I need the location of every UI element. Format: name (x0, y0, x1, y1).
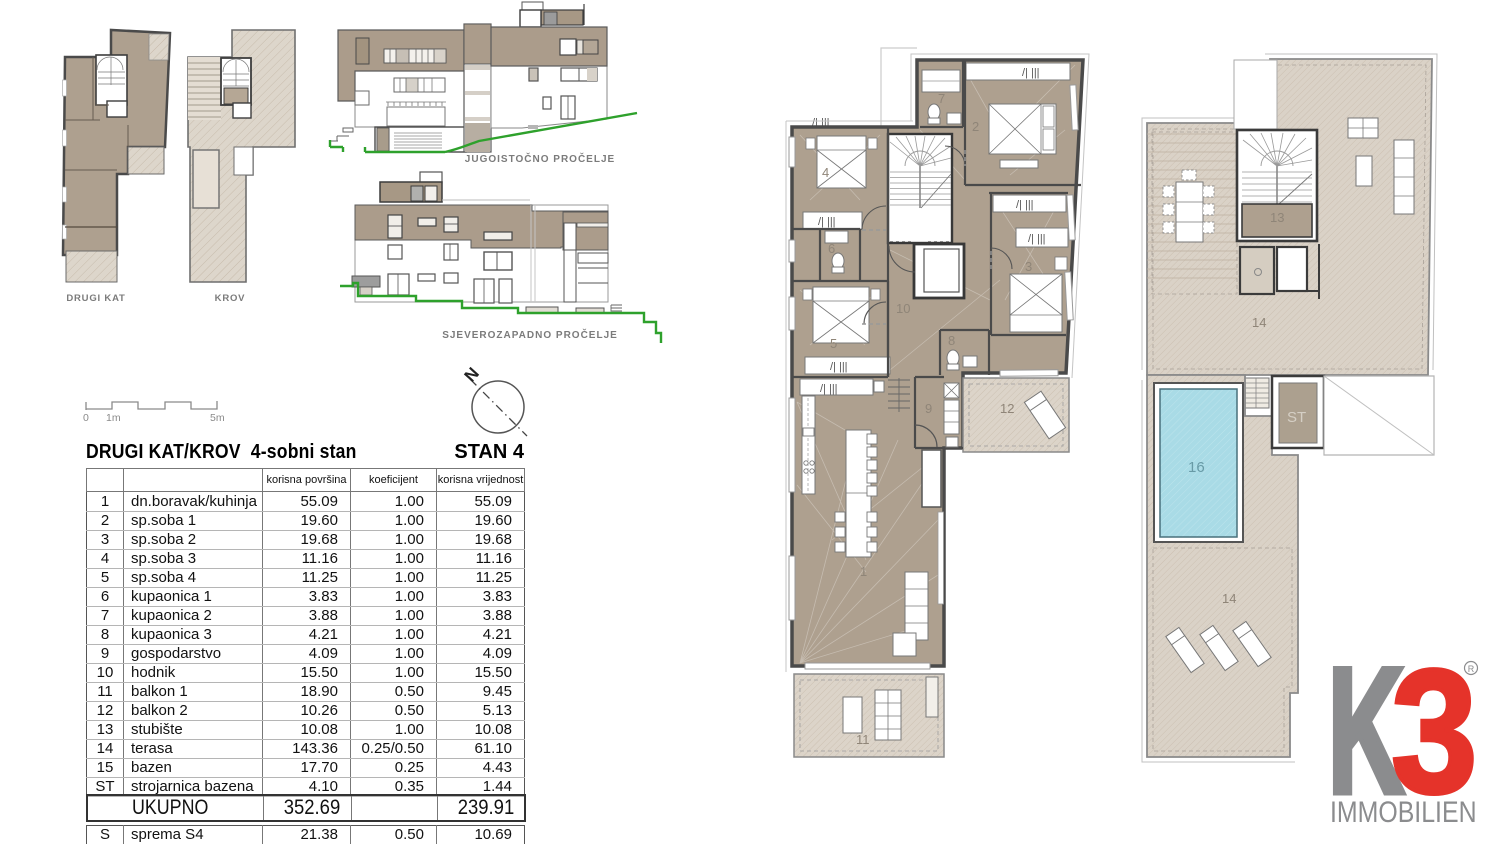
svg-text:0: 0 (83, 412, 89, 424)
svg-text:2: 2 (972, 119, 979, 134)
svg-text:14: 14 (1252, 315, 1266, 330)
svg-text:16: 16 (1188, 459, 1205, 476)
svg-text:10: 10 (896, 301, 910, 316)
svg-text:IMMOBILIEN: IMMOBILIEN (1330, 795, 1477, 829)
svg-text:SJEVEROZAPADNO PROČELJE: SJEVEROZAPADNO PROČELJE (442, 328, 618, 341)
svg-text:1m: 1m (106, 412, 121, 424)
svg-text:9: 9 (925, 401, 932, 416)
svg-text:/| |||: /| ||| (820, 383, 838, 395)
svg-text:N: N (461, 364, 483, 386)
svg-text:13: 13 (1270, 210, 1284, 225)
svg-text:1: 1 (860, 564, 867, 579)
svg-text:KROV: KROV (215, 293, 246, 304)
svg-text:14: 14 (1222, 591, 1236, 606)
svg-text:5: 5 (830, 336, 837, 351)
svg-text:/| |||: /| ||| (1028, 233, 1046, 245)
svg-text:11: 11 (856, 732, 870, 747)
svg-text:/| |||: /| ||| (1022, 67, 1040, 79)
svg-text:R: R (1468, 664, 1475, 674)
svg-text:7: 7 (938, 91, 945, 106)
svg-text:/| |||: /| ||| (818, 216, 836, 228)
svg-text:12: 12 (1000, 401, 1014, 416)
svg-text:/| |||: /| ||| (1016, 199, 1034, 211)
svg-text:/| |||: /| ||| (830, 361, 848, 373)
svg-text:ST: ST (1287, 409, 1306, 426)
svg-text:6: 6 (828, 241, 835, 256)
svg-text:5m: 5m (210, 412, 225, 424)
svg-text:4: 4 (822, 165, 829, 180)
svg-text:DRUGI KAT: DRUGI KAT (66, 293, 125, 304)
svg-text:JUGOISTOČNO PROČELJE: JUGOISTOČNO PROČELJE (465, 152, 615, 165)
svg-text:3: 3 (1025, 259, 1032, 274)
svg-text:8: 8 (948, 333, 955, 348)
